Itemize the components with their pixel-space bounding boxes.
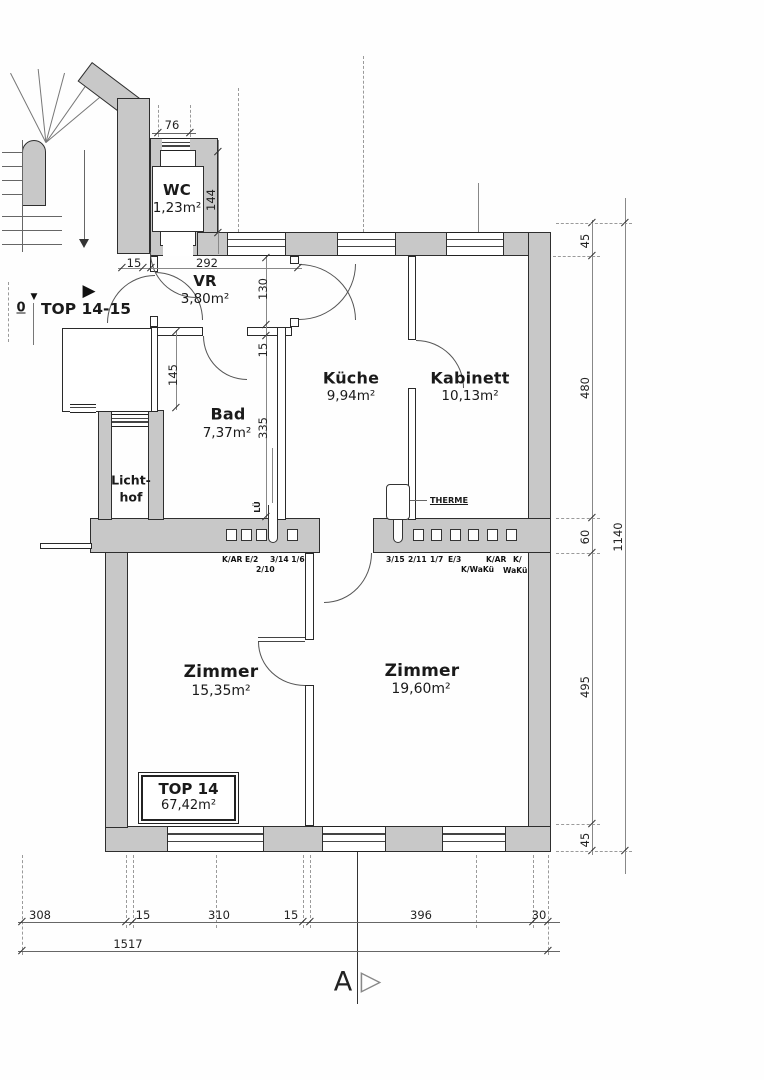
fs [256, 529, 267, 541]
wall-left [105, 551, 128, 828]
room-area-bad: 7,37m² [203, 425, 252, 441]
g2 [168, 841, 263, 842]
dash [548, 855, 549, 955]
tick [172, 404, 180, 412]
room-label-lichthof-1: Licht- [111, 473, 151, 488]
wall-stub [40, 543, 92, 549]
dash [126, 855, 127, 928]
wall-kueche-kabinett [408, 256, 416, 340]
dash [238, 88, 239, 232]
dim-right-60: 60 [578, 530, 592, 545]
section-triangle-icon: ▷ [361, 966, 382, 997]
g1 [447, 239, 503, 240]
flue-label: WaKü [503, 566, 527, 575]
wall-flue-left [90, 518, 320, 553]
floor-plan: THERME LÜ 76 144 15 292 130 15 335 145 4… [0, 0, 764, 1080]
landing-window [70, 404, 96, 413]
flue-label: K/ [513, 555, 522, 564]
unit-area: 67,42m² [143, 798, 234, 813]
wall-zimmer-zimmer [305, 685, 314, 826]
top-window-2 [338, 232, 395, 256]
wall-bottom-corner [505, 826, 551, 852]
top-window-3 [447, 232, 503, 256]
ln [478, 183, 479, 232]
dim-bottom-308: 308 [29, 908, 51, 922]
level-value: 0 [16, 301, 25, 316]
entry-arrow-icon: ▶ [82, 281, 95, 301]
room-label-vr: VR [193, 272, 217, 290]
lichthof-window [112, 414, 148, 427]
dashh [556, 553, 600, 554]
vent-label: LÜ [252, 501, 262, 513]
g1 [228, 239, 285, 240]
room-label-kueche: Küche [323, 369, 379, 388]
wall-top-pier [197, 232, 228, 256]
therme-label: THERME [430, 495, 468, 505]
cut [160, 150, 196, 167]
ln [2, 152, 22, 153]
dim-bottom-total: 1517 [113, 937, 142, 951]
fs [450, 529, 461, 541]
dim-wc-height: 144 [204, 189, 218, 211]
fs [431, 529, 442, 541]
section-line [357, 852, 358, 1004]
wall-stair-vertical [117, 98, 150, 254]
dashh [556, 824, 600, 825]
g2 [323, 841, 385, 842]
bad-door-swing [203, 336, 247, 380]
bottom-window-1 [168, 826, 263, 852]
dim-bottom-15a: 15 [136, 908, 151, 922]
ln [2, 194, 22, 195]
wall-landing [62, 328, 152, 412]
flue-label: 3/14 1/6 [270, 555, 305, 564]
room-area-vr: 3,80m² [181, 291, 230, 307]
bottom-window-2 [323, 826, 385, 852]
dash [22, 855, 23, 955]
g2 [162, 145, 190, 146]
fs [506, 529, 517, 541]
dim-bottom-30: 30 [532, 908, 547, 922]
room-label-kabinett: Kabinett [430, 369, 509, 388]
dashh [556, 851, 632, 852]
room-area-zimmer1: 15,35m² [191, 683, 250, 699]
ln [2, 230, 62, 231]
room-area-kueche: 9,94m² [327, 388, 376, 404]
wall-kueche-west [290, 318, 299, 327]
ln [18, 922, 560, 923]
flue-label: 2/10 [256, 565, 275, 574]
wall-bad-east [277, 327, 286, 520]
g2 [447, 246, 503, 247]
flue-label: K/AR E/2 [222, 555, 258, 564]
top-window-1 [228, 232, 285, 256]
g1 [70, 407, 96, 408]
flue-label: K/AR [486, 555, 506, 564]
fs [468, 529, 479, 541]
ln [410, 500, 427, 501]
room-label-wc: WC [163, 181, 191, 199]
cut [152, 166, 204, 232]
flue-label: 2/11 [408, 555, 427, 564]
flue-label: 3/15 [386, 555, 405, 564]
dim-vr-15: 15 [127, 256, 142, 270]
room-area-kabinett: 10,13m² [441, 388, 498, 404]
ln [33, 303, 34, 345]
g1 [338, 239, 395, 240]
room-label-zimmer1: Zimmer [184, 662, 259, 682]
fs [287, 529, 298, 541]
wall-zimmer-zimmer [305, 553, 314, 640]
g2 [443, 841, 505, 842]
ln [2, 244, 62, 245]
g2 [228, 246, 285, 247]
g2 [338, 246, 395, 247]
dim-right-total: 1140 [611, 522, 625, 551]
unit-entry-label: TOP 14-15 [41, 300, 131, 318]
dim-landing: 145 [166, 364, 180, 386]
room-label-lichthof-2: hof [120, 490, 143, 505]
dashh [556, 518, 600, 519]
ln [592, 220, 593, 855]
wall-bottom-pier [385, 826, 443, 852]
dash [476, 855, 477, 928]
dim-vr-height: 130 [256, 278, 270, 300]
ln [18, 951, 560, 952]
zimmer1-door-swing [258, 642, 305, 686]
stair-direction-arrow-icon [79, 239, 89, 248]
therme-boiler [386, 484, 410, 520]
unit-name: TOP 14 [143, 780, 234, 798]
ln [2, 166, 22, 167]
g1 [168, 833, 263, 834]
dash [363, 56, 364, 232]
dim-bottom-396: 396 [410, 908, 432, 922]
g2 [112, 421, 148, 422]
fs [487, 529, 498, 541]
dim-vr-width: 292 [196, 256, 218, 270]
bottom-window-3 [443, 826, 505, 852]
dim-wall-15: 15 [256, 343, 270, 358]
dashh [556, 223, 632, 224]
ln [218, 140, 219, 254]
wc-window [162, 138, 190, 151]
dash [310, 855, 311, 928]
dash [8, 282, 9, 342]
unit-summary-box: TOP 14 67,42m² [141, 775, 236, 821]
g1 [443, 833, 505, 834]
section-letter: A [334, 967, 352, 998]
dashh [553, 256, 600, 257]
dim-bottom-310: 310 [208, 908, 230, 922]
dash [133, 855, 134, 928]
room-label-bad: Bad [210, 405, 245, 424]
wall-bottom-pier [263, 826, 323, 852]
dim-right-480: 480 [578, 377, 592, 399]
ln [272, 448, 273, 503]
fs [226, 529, 237, 541]
stair-walk-line [84, 150, 85, 240]
wall-lichthof-right [148, 410, 164, 520]
g1 [323, 833, 385, 834]
room-area-zimmer2: 19,60m² [391, 681, 450, 697]
dim-right-45-top: 45 [578, 234, 592, 249]
dim-wc-window: 76 [165, 118, 180, 132]
ln [2, 216, 62, 217]
dim-right-495: 495 [578, 676, 592, 698]
wall-lichthof-left [98, 410, 112, 520]
dim-bad-height: 335 [256, 417, 270, 439]
flue-label: E/3 [448, 555, 461, 564]
dim-bottom-15b: 15 [284, 908, 299, 922]
dim-right-45-bottom: 45 [578, 833, 592, 848]
g1 [112, 418, 148, 419]
dash [303, 855, 304, 928]
ln [2, 180, 22, 181]
fs [241, 529, 252, 541]
ln [625, 198, 626, 874]
zimmer2-door-swing [324, 553, 372, 603]
g1 [162, 142, 190, 143]
ln [22, 140, 23, 252]
wall-top-pier [395, 232, 447, 256]
room-area-wc: 1,23m² [153, 200, 202, 216]
wall-kueche-west [290, 256, 299, 264]
wall-bottom-pier [105, 826, 168, 852]
flue-label: K/WaKü [461, 565, 494, 574]
stair-newel [22, 140, 46, 206]
room-label-zimmer2: Zimmer [385, 661, 460, 681]
wall-top-pier [285, 232, 338, 256]
level-marker-icon: ▼ [31, 292, 38, 302]
fs [413, 529, 424, 541]
flue-label: 1/7 [430, 555, 443, 564]
